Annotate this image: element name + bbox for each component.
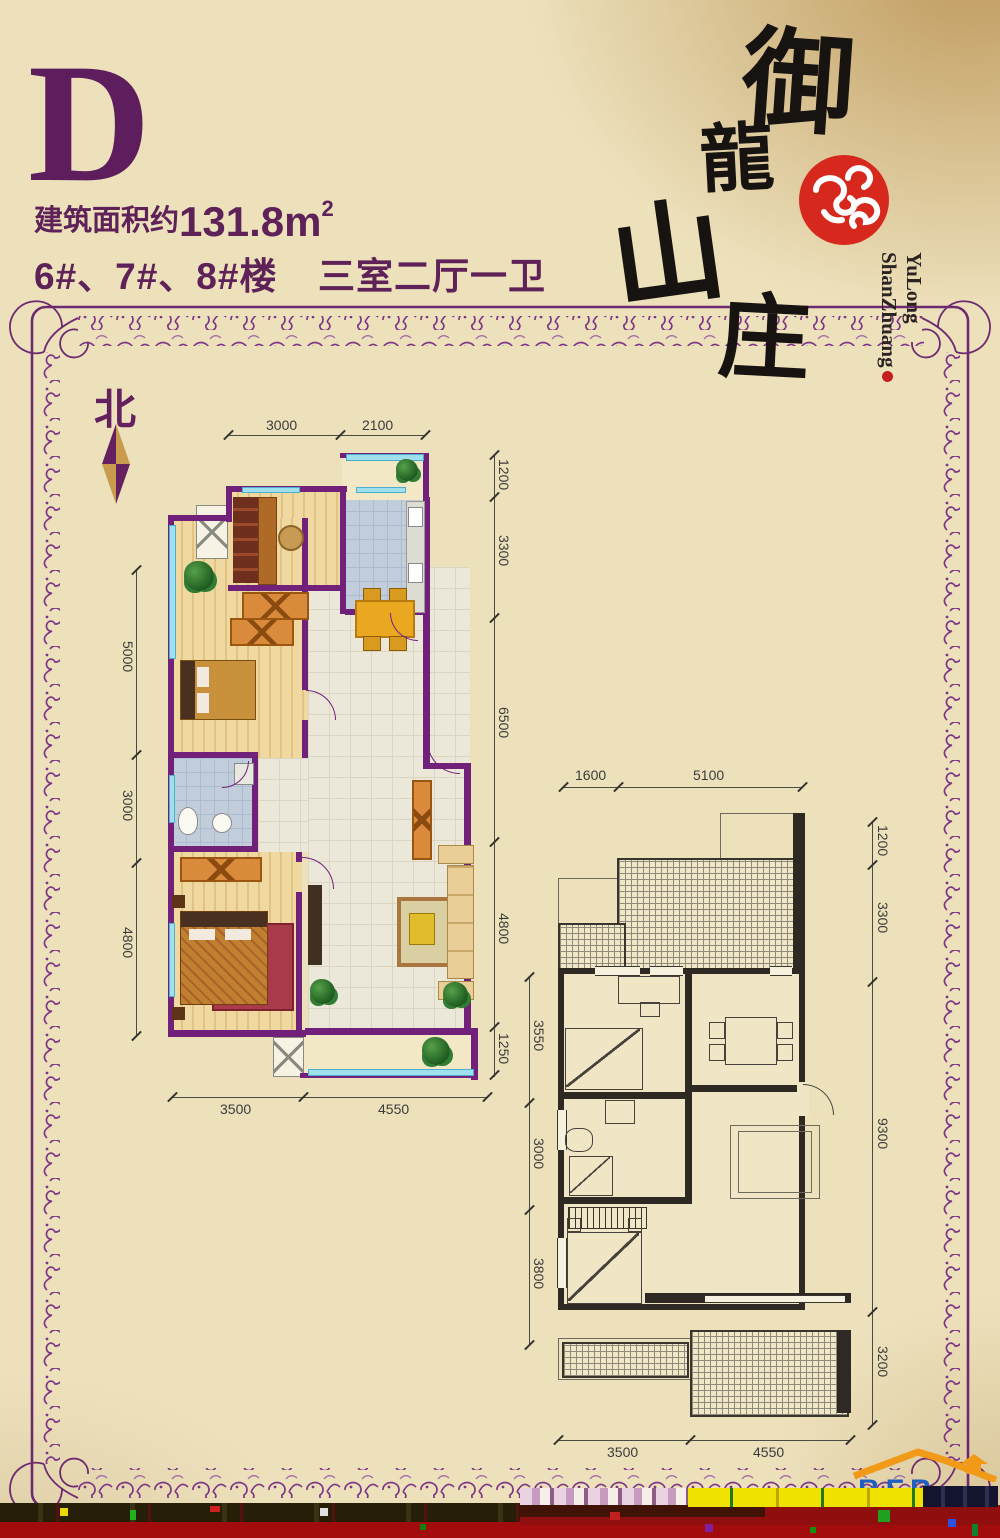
- roof-outline: [720, 813, 795, 859]
- nightstand: [172, 895, 185, 908]
- sofa: [447, 865, 474, 979]
- logo-char-shan: 山: [605, 193, 731, 319]
- area-line: 建筑面积约131.8m2: [34, 196, 334, 246]
- dim-label: 1200: [496, 459, 512, 490]
- wardrobe: [180, 857, 262, 882]
- dim-label: 3800: [531, 1258, 547, 1289]
- door-arc: [803, 1084, 834, 1115]
- window: [169, 923, 175, 997]
- dining-table: [725, 1017, 777, 1065]
- rooms-text: 三室二厅一卫: [318, 256, 546, 297]
- dim-label: 3000: [531, 1138, 547, 1169]
- dim-label: 3000: [120, 790, 136, 821]
- bed: [180, 660, 256, 720]
- terrace-hatched: [558, 923, 626, 972]
- window: [557, 1238, 567, 1288]
- dining-chair: [777, 1022, 793, 1039]
- dim-label: 3300: [875, 902, 891, 933]
- buildings-line: 6#、7#、8#楼 三室二厅一卫: [34, 246, 546, 300]
- sink: [212, 813, 232, 833]
- window: [595, 966, 640, 976]
- north-arrow-icon: [98, 424, 134, 504]
- roof-outline: [558, 878, 624, 925]
- bay-window-inner: [738, 1131, 812, 1193]
- window: [169, 775, 175, 823]
- logo-roman-line2: ShanZhuang: [876, 252, 901, 402]
- dining-chair: [389, 636, 407, 651]
- brochure-page: { "header": { "plan_letter": "D", "area_…: [0, 0, 1000, 1538]
- terrace-hatched: [617, 858, 797, 972]
- dim-label: 3550: [531, 1020, 547, 1051]
- plant-icon: [443, 982, 468, 1007]
- area-value: 131.8m: [179, 198, 321, 245]
- shoe-cabinet: [412, 780, 432, 860]
- window: [705, 1295, 845, 1303]
- area-prefix: 建筑面积约: [34, 205, 179, 237]
- wardrobe: [230, 618, 294, 646]
- dining-chair: [363, 636, 381, 651]
- tv-cabinet: [308, 885, 322, 965]
- bed: [180, 911, 268, 1005]
- stove: [408, 563, 423, 583]
- dim-label: 3300: [496, 535, 512, 566]
- dim-label: 4800: [120, 927, 136, 958]
- dim-label: 6500: [496, 707, 512, 738]
- dim-label: 3500: [220, 1101, 251, 1117]
- window: [242, 487, 300, 493]
- plant-icon: [184, 561, 214, 591]
- window: [650, 966, 683, 976]
- toilet: [565, 1128, 593, 1152]
- colored-floor-plan: 3000 2100 1200 3300 6500 4800 1250 5000 …: [160, 445, 505, 1105]
- bookshelf: [233, 497, 258, 583]
- dim-label: 1600: [575, 767, 606, 783]
- dim-label: 4800: [496, 913, 512, 944]
- window: [770, 966, 792, 976]
- desk: [618, 976, 680, 1004]
- dining-chair: [777, 1044, 793, 1061]
- dim-label: 3200: [875, 1346, 891, 1377]
- buildings-text: 6#、7#、8#楼: [34, 256, 277, 297]
- plant-icon: [396, 459, 418, 481]
- logo-char-zhuang: 庄: [716, 290, 813, 387]
- logo-romanized: YuLong ShanZhuang: [876, 252, 926, 402]
- nightstand: [628, 1218, 642, 1232]
- terrace-hatched: [690, 1330, 849, 1417]
- dim-label: 9300: [875, 1118, 891, 1149]
- dining-chair: [709, 1022, 725, 1039]
- plant-icon: [310, 979, 335, 1004]
- desk: [258, 497, 277, 585]
- red-dot-icon: [882, 371, 893, 382]
- dim-label: 1200: [875, 825, 891, 856]
- nightstand: [567, 1218, 581, 1232]
- unit-letter: D: [28, 38, 151, 208]
- ac-closet-box: [273, 1037, 304, 1077]
- dim-label: 3000: [266, 417, 297, 433]
- window: [169, 525, 176, 659]
- plant-icon: [422, 1037, 450, 1065]
- room-corridor: [258, 758, 308, 852]
- toilet: [178, 807, 198, 835]
- desk-chair: [278, 525, 304, 551]
- window: [308, 1069, 474, 1076]
- window: [356, 487, 406, 493]
- logo-roman-line1: YuLong: [901, 252, 926, 402]
- wardrobe: [242, 592, 309, 620]
- dim-label: 1250: [496, 1033, 512, 1064]
- kitchen-sink: [408, 507, 423, 527]
- technical-floor-plan: 1600 5100 1200 3300 9300 3200 3550 3000 …: [545, 770, 905, 1470]
- dim-label: 4550: [378, 1101, 409, 1117]
- dim-label: 5100: [693, 767, 724, 783]
- dragon-seal-icon: [796, 152, 892, 248]
- dim-label: 3500: [607, 1444, 638, 1460]
- dim-label: 2100: [362, 417, 393, 433]
- armchair: [438, 845, 474, 864]
- area-superscript: 2: [321, 196, 333, 221]
- desk-chair: [640, 1002, 660, 1017]
- stairwell-box: [196, 505, 228, 559]
- dim-label: 5000: [120, 641, 136, 672]
- dim-label: 4550: [753, 1444, 784, 1460]
- sink: [605, 1100, 635, 1124]
- dining-chair: [709, 1044, 725, 1061]
- nightstand: [172, 1007, 185, 1020]
- coffee-table: [409, 913, 435, 945]
